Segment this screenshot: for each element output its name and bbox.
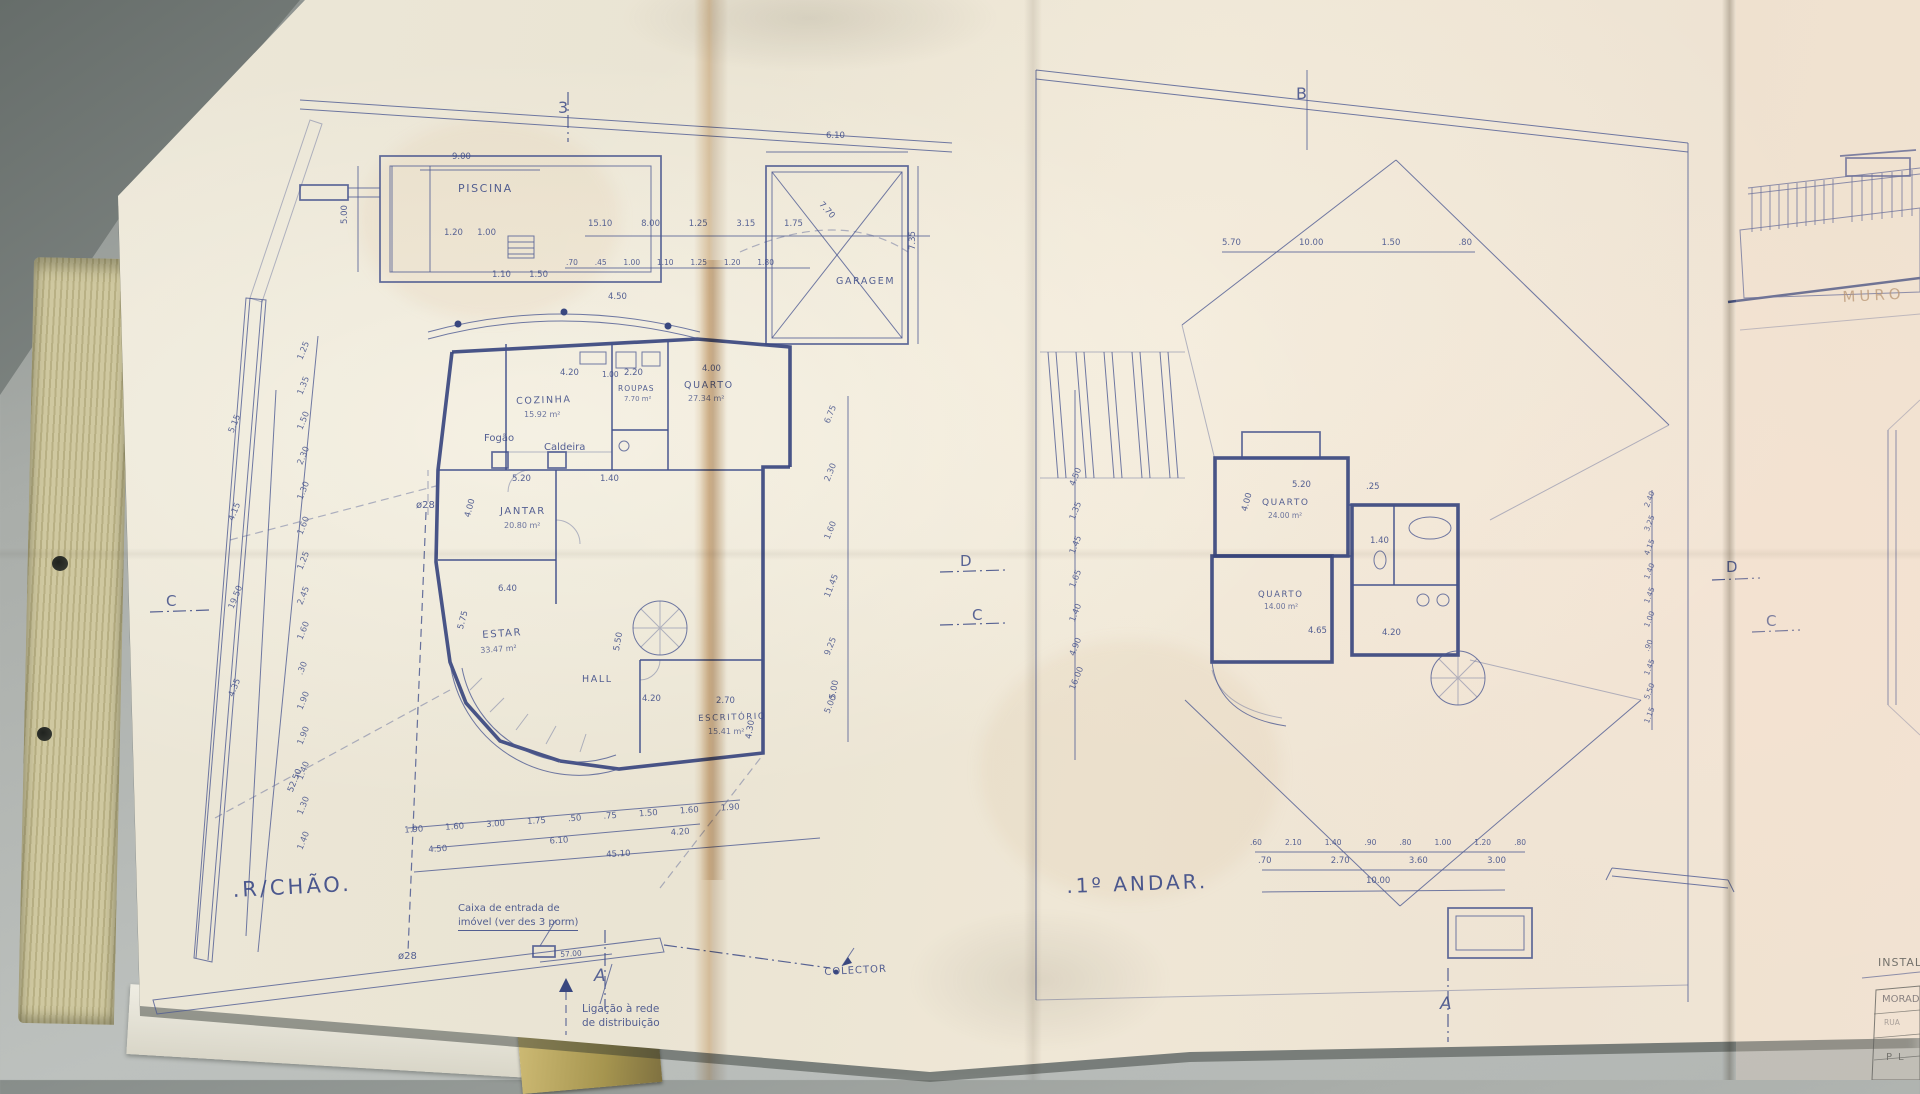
dim-value: 1.80	[757, 258, 774, 267]
side-sheet-fragments	[1888, 400, 1920, 735]
dim-value: 1.00	[623, 258, 640, 267]
garage-plan	[740, 152, 918, 344]
right-bottom-dim-row2: .702.703.603.00	[1258, 856, 1506, 866]
int-dim: 2.20	[624, 368, 643, 378]
int-dim: 2.70	[716, 696, 735, 706]
right-bottom-total: 10.00	[1366, 876, 1390, 886]
dim-value: 15.10	[588, 219, 612, 229]
dim-value: 8.00	[641, 219, 660, 229]
top-dim-row1: 15.108.001.253.151.75	[588, 219, 803, 229]
dim-value: 1.90	[404, 824, 424, 835]
dim-value: 1.25	[689, 219, 708, 229]
dim-value: 1.60	[679, 805, 699, 816]
room-roupas: ROUPAS	[618, 384, 655, 393]
muro-label: MURO	[1842, 285, 1905, 306]
room-escritorio-area: 15.41 m²	[708, 727, 744, 736]
pool-width-dim: 9.00	[452, 152, 471, 162]
section-marker-c-right: C	[1766, 612, 1776, 630]
dim-value: 1.60	[445, 822, 465, 833]
left-outer-dim-chain: 1.251.351.502.301.301.601.252.451.60.301…	[306, 338, 325, 863]
right-dim-chain-left-sheet: 6.752.301.6011.459.255.00	[842, 392, 866, 740]
dim-value: 1.40	[1325, 838, 1342, 847]
room-jantar-area: 20.80 m²	[504, 521, 540, 530]
int-dim: 4.20	[1382, 628, 1401, 638]
dim-value: 3.00	[1487, 856, 1506, 866]
dim-value: .75	[603, 811, 617, 822]
entry-note-line2: imóvel (ver des 3 porm)	[458, 916, 578, 931]
int-dim: 4.65	[1308, 626, 1327, 636]
dim-value: .50	[568, 813, 582, 824]
dist-note-line2: de distribuição	[582, 1016, 660, 1030]
equipment-caldeira: Caldeira	[544, 441, 585, 455]
dim-value: 2.10	[1285, 838, 1302, 847]
room-cozinha-area: 15.92 m²	[524, 410, 560, 419]
dim-value: 1.50	[1381, 238, 1400, 248]
dim-value: 4.20	[670, 827, 690, 838]
upper-floor-walls	[1212, 432, 1485, 726]
pipe-diameter-lower: ø28	[398, 950, 417, 964]
equipment-fogao: Fogão	[484, 432, 514, 446]
int-dim: 6.40	[498, 584, 517, 594]
dim-value: 1.00	[477, 228, 496, 238]
pool-height-dim: 5.00	[340, 205, 350, 224]
section-marker-a-right: A	[1440, 994, 1452, 1014]
room-roupas-area: 7.70 m²	[624, 395, 651, 403]
right-plan-left-chain: 4.501.351.451.651.404.9016.00	[1076, 462, 1100, 700]
pool-dim-chain2: 1.101.50	[492, 270, 548, 280]
section-marker-3: 3	[558, 98, 568, 117]
dim-value: 1.20	[724, 258, 741, 267]
pool-dim-chain: 1.201.00	[444, 228, 496, 238]
int-dim: 1.40	[600, 474, 619, 484]
dim-value: 1.25	[690, 258, 707, 267]
dim-value: .90	[1365, 838, 1377, 847]
garage-height-dim: 7.35	[908, 231, 918, 250]
dim-value: 1.10	[657, 258, 674, 267]
dim-value: .80	[1400, 838, 1412, 847]
dim-value: 1.50	[529, 270, 548, 280]
pergola-bars	[1040, 352, 1185, 478]
distribution-note: Ligação à rede de distribuição	[582, 1002, 660, 1030]
entry-note-line1: Caixa de entrada de	[458, 902, 578, 916]
dim-value: 1.20	[1474, 838, 1491, 847]
dim-value: 3.60	[1409, 856, 1428, 866]
section-marker-c-left: C	[166, 592, 176, 610]
pool-label: PISCINA	[458, 182, 513, 195]
right-site-boundary	[1036, 70, 1800, 1042]
dim-value: 1.50	[639, 808, 659, 819]
garage-width-dim: 6.10	[826, 131, 845, 141]
int-dim: 4.20	[560, 368, 579, 378]
right-bottom-dim-row1: .602.101.40.90.801.001.20.80	[1250, 838, 1526, 847]
section-marker-a-left: A	[594, 966, 606, 986]
room-quarto-area: 27.34 m²	[688, 394, 724, 403]
bottom-total-dim: 45.10	[606, 849, 631, 860]
title-block-row2: MORAD	[1882, 994, 1920, 1005]
right-plan-right-chain: 2.403.254.151.401.451.00.901.455.501.15	[1648, 490, 1665, 730]
int-dim: 4.00	[702, 364, 721, 374]
room-quarto1-upper: QUARTO	[1262, 498, 1310, 508]
dim-value: 4.50	[428, 844, 448, 855]
room-cozinha: COZINHA	[516, 394, 572, 407]
dim-value: .70	[566, 258, 578, 267]
title-block-row4: PL	[1886, 1052, 1910, 1063]
room-quarto2-area: 14.00 m²	[1264, 602, 1298, 611]
roof-lines	[1182, 160, 1669, 906]
dim-value: 3.15	[736, 219, 755, 229]
garage-label: GARAGEM	[836, 276, 895, 287]
title-block-row3: RUA	[1884, 1018, 1900, 1027]
dist-note-line1: Ligação à rede	[582, 1002, 660, 1016]
room-quarto2-upper: QUARTO	[1258, 590, 1304, 600]
int-dim: 4.20	[642, 694, 661, 704]
dim-value: .70	[1258, 856, 1272, 866]
pipe-run-dim: 57.00	[560, 949, 582, 959]
dim-value: 1.10	[492, 270, 511, 280]
entry-box-note: Caixa de entrada de imóvel (ver des 3 po…	[458, 902, 578, 931]
dim-value: 3.00	[486, 819, 506, 830]
dim-value: 6.10	[549, 835, 569, 846]
dim-value: .80	[1514, 838, 1526, 847]
int-dim: 1.00	[602, 370, 619, 379]
int-dim: 5.20	[1292, 480, 1311, 490]
floor-title-andar: .1º ANDAR.	[1066, 869, 1209, 898]
section-marker-d-mid: D	[960, 552, 972, 570]
dim-value: .80	[1458, 238, 1472, 248]
right-top-dim-row: 5.7010.001.50.80	[1222, 238, 1472, 248]
section-marker-c-mid: C	[972, 606, 982, 624]
pipe-diameter-upper: ø28	[416, 499, 435, 513]
dim-value: 1.75	[784, 219, 803, 229]
photo-of-blueprint: { "colors": {"ink":"#44538b","ink_dark":…	[0, 0, 1920, 1080]
dim-value: .60	[1250, 838, 1262, 847]
section-marker-b: B	[1296, 84, 1307, 103]
dim-value: 2.70	[1331, 856, 1350, 866]
room-jantar: JANTAR	[500, 506, 546, 517]
dim-value: .45	[595, 258, 607, 267]
int-dim: 5.20	[512, 474, 531, 484]
dim-value: 10.00	[1299, 238, 1323, 248]
dim-value: 1.20	[444, 228, 463, 238]
section-marker-d-right: D	[1726, 558, 1738, 576]
dim-value: 1.00	[1435, 838, 1452, 847]
room-hall: HALL	[582, 674, 613, 685]
dim-value: 1.90	[720, 802, 740, 813]
int-dim: .25	[1366, 482, 1380, 492]
top-dim-row2: .70.451.001.101.251.201.80	[566, 258, 774, 267]
dim-value: 5.70	[1222, 238, 1241, 248]
int-dim: 4.50	[608, 292, 627, 302]
room-quarto1-area: 24.00 m²	[1268, 511, 1302, 520]
title-block-row1: INSTAL	[1878, 956, 1920, 969]
dim-value: 1.75	[527, 816, 547, 827]
left-inner-dim-chain: 5.154.1519.504.35	[260, 392, 284, 744]
int-dim: 1.40	[1370, 536, 1389, 546]
room-quarto: QUARTO	[684, 380, 734, 391]
